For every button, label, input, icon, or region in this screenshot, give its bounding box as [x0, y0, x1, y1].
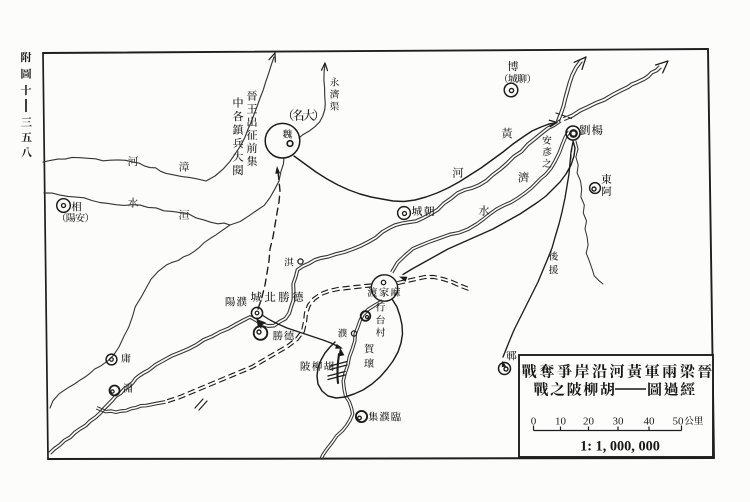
- svg-text:30: 30: [613, 416, 625, 428]
- svg-text:1: 1, 000, 000: 1: 1, 000, 000: [580, 439, 660, 455]
- svg-text:50: 50: [673, 416, 685, 428]
- svg-text:0: 0: [531, 416, 537, 428]
- svg-text:40: 40: [644, 416, 656, 428]
- svg-text:10: 10: [555, 416, 567, 428]
- svg-text:20: 20: [583, 416, 595, 428]
